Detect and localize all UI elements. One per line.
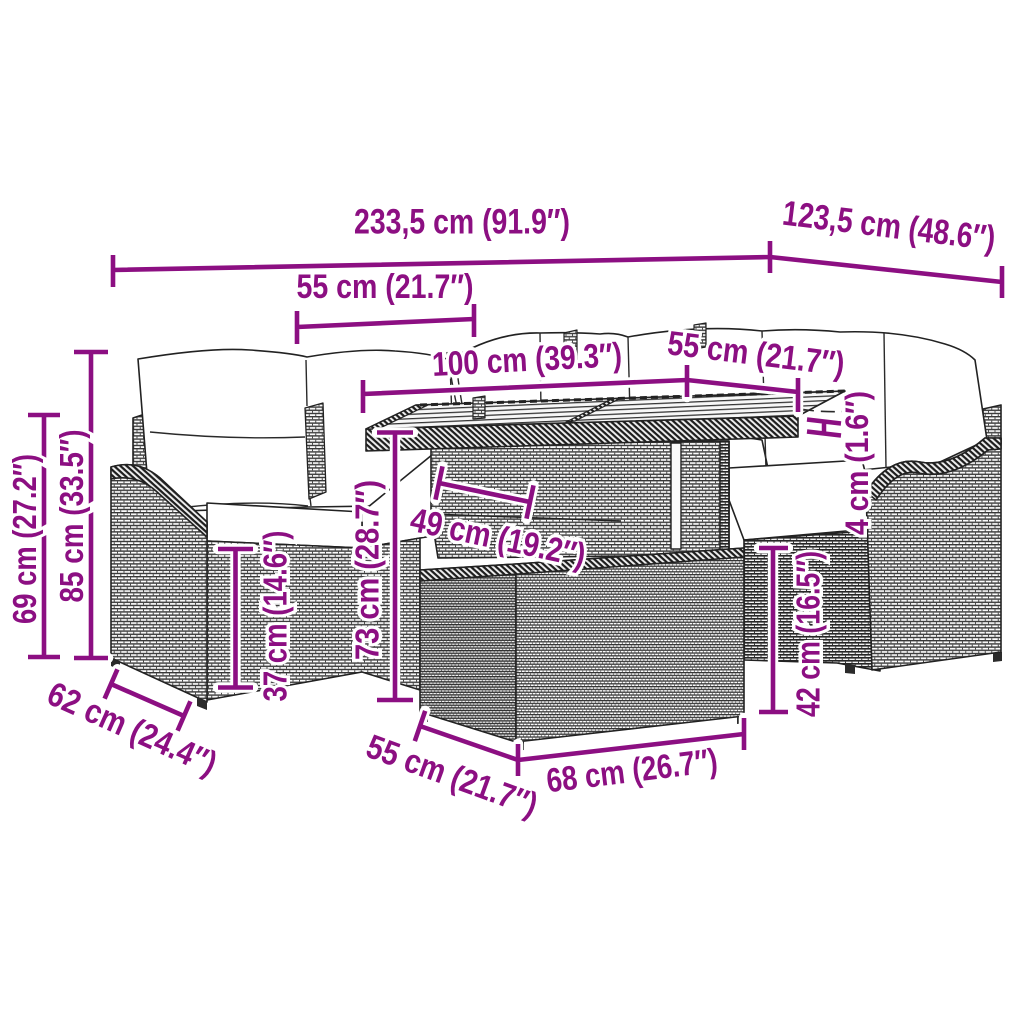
svg-text:73 cm (28.7″): 73 cm (28.7″) (349, 480, 386, 660)
svg-text:4 cm (1.6″): 4 cm (1.6″) (839, 391, 875, 535)
svg-text:85 cm (33.5″): 85 cm (33.5″) (53, 430, 90, 603)
svg-text:69 cm (27.2″): 69 cm (27.2″) (6, 454, 43, 624)
svg-text:42 cm (16.5″): 42 cm (16.5″) (790, 551, 827, 717)
svg-text:55 cm (21.7″): 55 cm (21.7″) (297, 268, 474, 306)
svg-text:37 cm (14.6″): 37 cm (14.6″) (257, 531, 294, 702)
svg-text:233,5 cm (91.9″): 233,5 cm (91.9″) (354, 203, 570, 242)
